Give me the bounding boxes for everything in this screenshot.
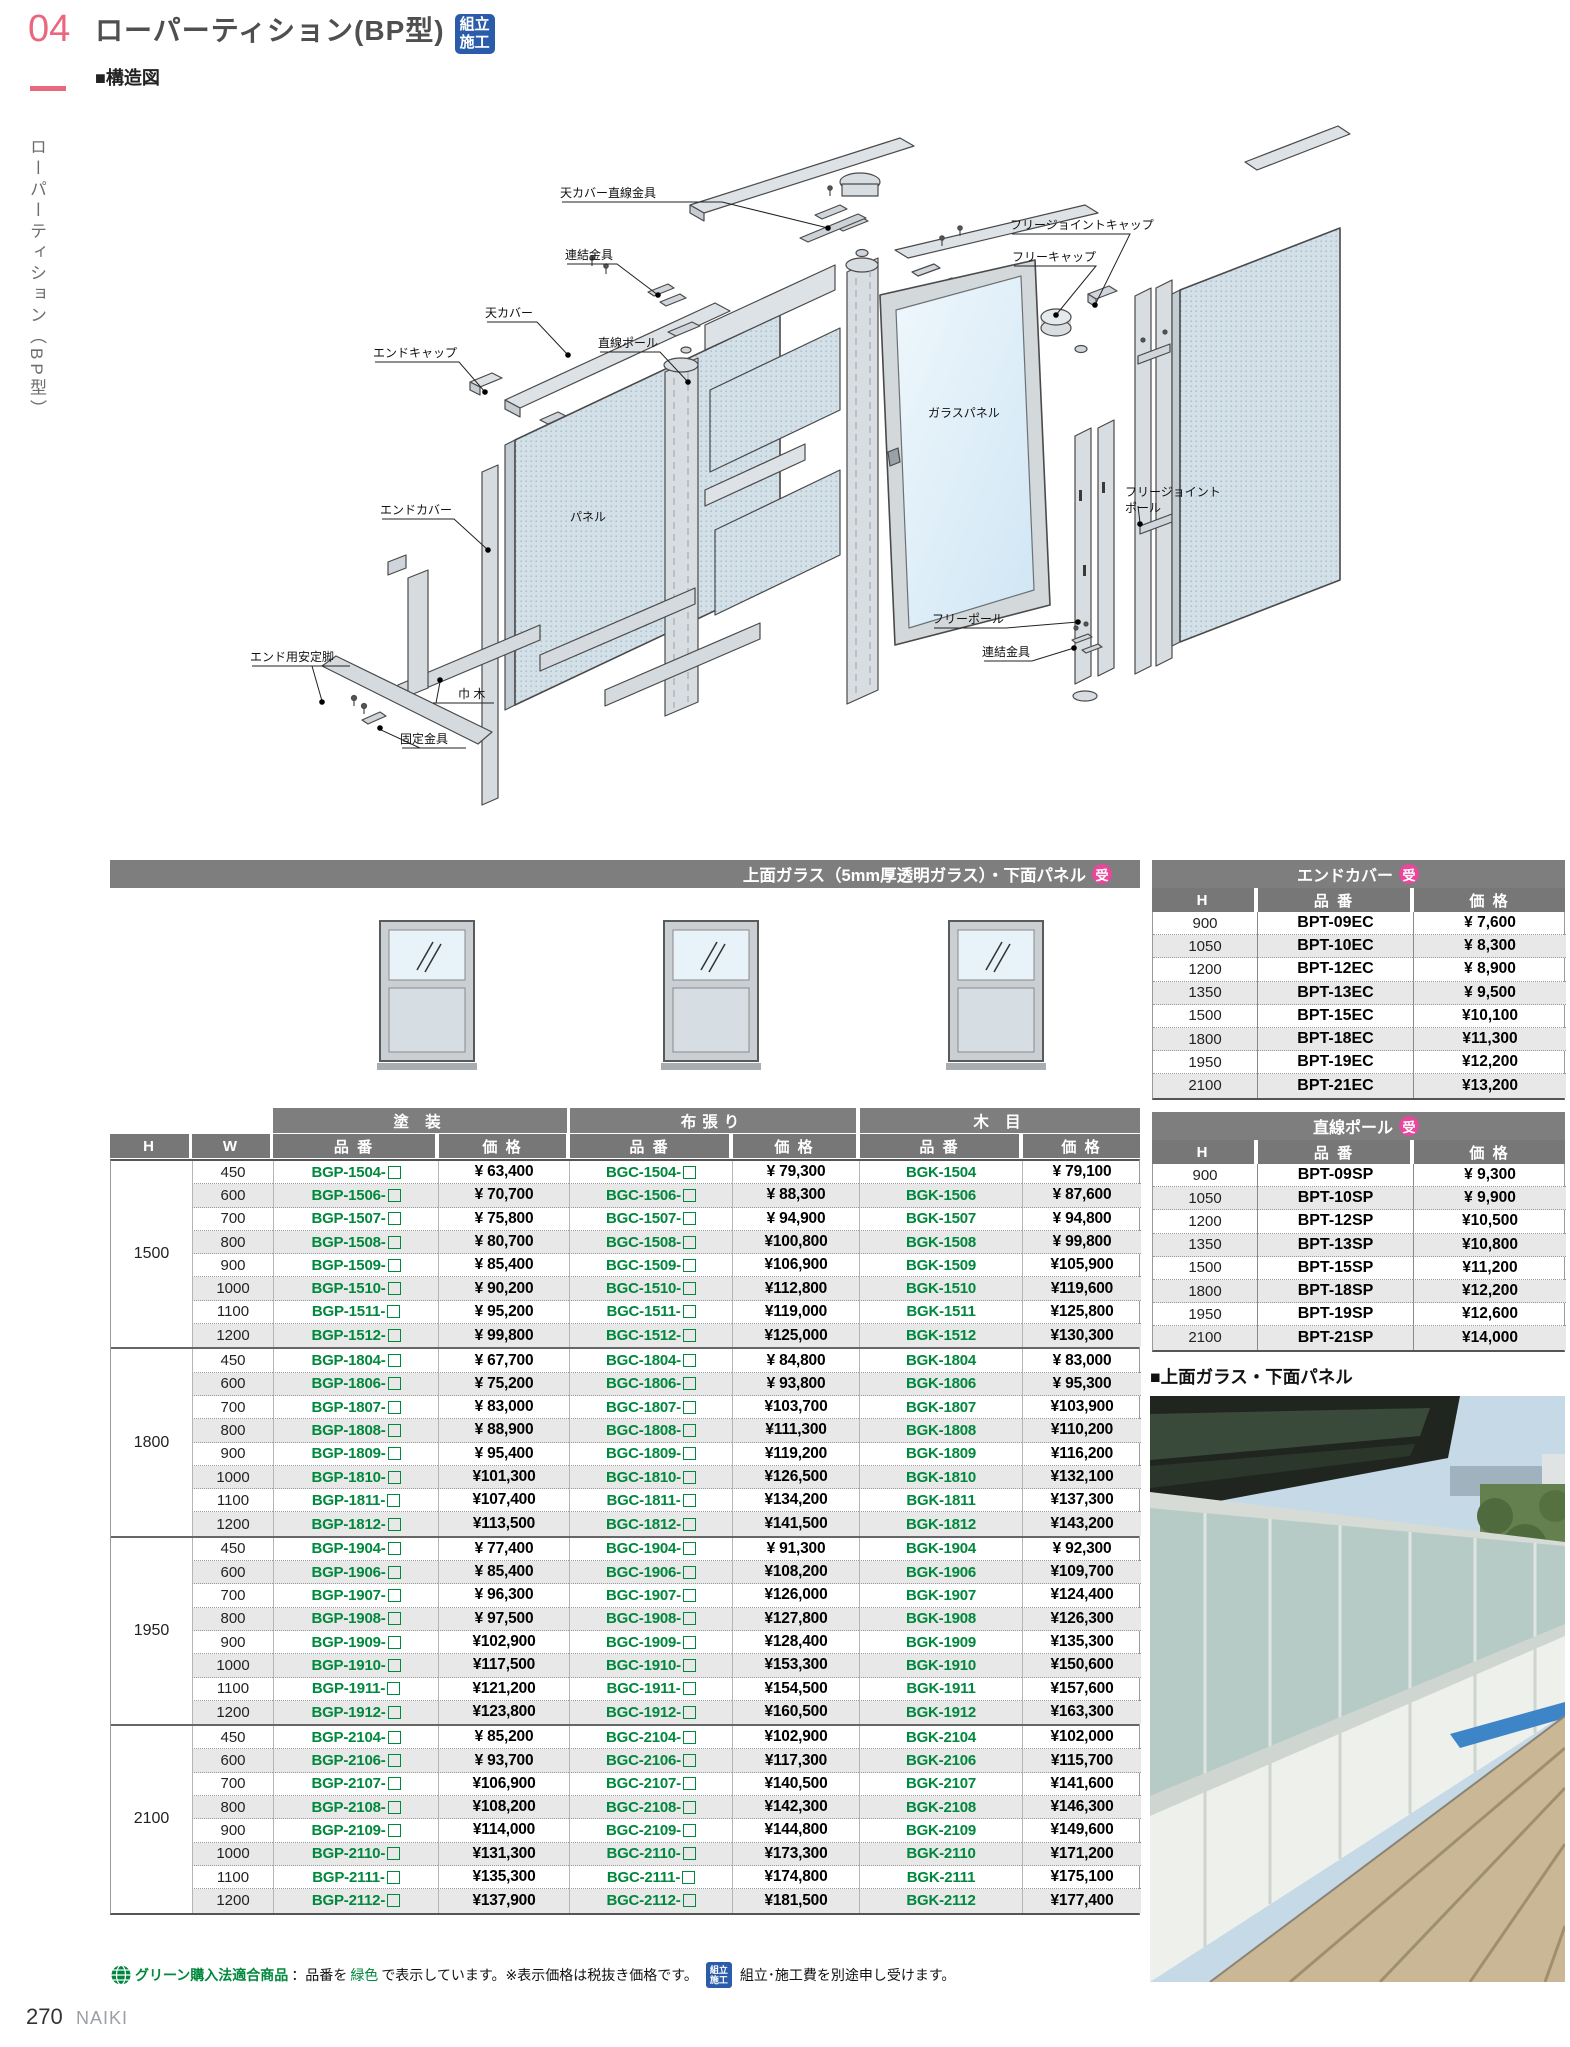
price: ¥10,100 [1413,1005,1566,1028]
product-code-text: BGP-1911- [312,1680,385,1697]
height-value: 1500 [1153,1257,1257,1280]
diagram-label-end-cover: エンドカバー [380,503,452,519]
width-value: 900 [192,1254,273,1277]
product-code-paint: BGP-1808- [273,1419,438,1442]
product-code-text: BGC-1811- [606,1492,680,1509]
product-code-wood: BGK-1504 [859,1161,1022,1184]
price-cloth: ¥181,500 [732,1889,859,1912]
color-variant-box [683,1894,696,1907]
product-code-text: BGP-1912- [311,1704,385,1721]
color-variant-box [683,1494,696,1507]
product-code-cloth: BGC-2109- [569,1819,732,1842]
height-value: 1800 [1153,1280,1257,1303]
product-code-paint: BGP-1804- [273,1349,438,1372]
width-value: 450 [192,1161,273,1184]
price-wood: ¥110,200 [1022,1419,1141,1442]
size-section-1950: 1950450BGP-1904-¥ 77,400BGC-1904-¥ 91,30… [111,1536,1139,1724]
color-variant-box [388,1589,401,1602]
green-purchase-label: グリーン購入法適合商品 [135,1965,288,1985]
assembly-badge-line1: 組立 [460,16,490,34]
col-header-price: 価 格 [733,1134,856,1158]
product-code: BPT-13EC [1257,982,1413,1005]
product-code-text: BGC-1907- [606,1587,681,1604]
product-code-text: BGK-1810 [906,1469,976,1486]
product-code-wood: BGK-1910 [859,1654,1022,1677]
product-code-text: BGP-1909- [311,1634,385,1651]
product-code-text: BGK-1804 [906,1352,976,1369]
product-code-wood: BGK-1510 [859,1277,1022,1300]
product-code-text: BGK-2109 [906,1822,976,1839]
price-cloth: ¥108,200 [732,1561,859,1584]
product-code-paint: BGP-1511- [273,1301,438,1324]
product-code-text: BGP-1904- [311,1540,385,1557]
price: ¥ 7,600 [1413,912,1566,935]
price: ¥11,200 [1413,1257,1566,1280]
height-group-value: 1800 [111,1349,192,1535]
assembly-fee-note: 組立･施工費を別途申し受けます。 [740,1965,956,1985]
page-title: ローパーティション(BP型) [95,14,445,48]
height-value: 1350 [1153,982,1257,1005]
price-cloth: ¥127,800 [732,1608,859,1631]
product-code-text: BGP-1512- [311,1327,385,1344]
page-section-number: 04 [28,8,70,51]
price-wood: ¥ 92,300 [1022,1538,1141,1561]
product-code-text: BGP-2106- [311,1752,385,1769]
order-production-badge: 受 [1092,864,1112,884]
title-row: ローパーティション(BP型) 組立 施工 [95,14,495,54]
product-code-paint: BGP-2106- [273,1749,438,1772]
product-code-text: BGP-2104- [311,1729,385,1746]
price-paint: ¥ 85,400 [438,1561,569,1584]
straight-pole-rows: 900BPT-09SP¥ 9,3001050BPT-10SP¥ 9,900120… [1152,1164,1565,1352]
product-code-paint: BGP-2107- [273,1773,438,1796]
color-variant-box [682,1871,695,1884]
col-header-price: 価 格 [1023,1134,1140,1158]
height-value: 1350 [1153,1234,1257,1257]
product-code-text: BGC-1511- [606,1303,680,1320]
color-variant-box [388,1731,401,1744]
width-value: 1100 [192,1866,273,1889]
product-code: BPT-12EC [1257,958,1413,981]
price-paint: ¥ 85,200 [438,1726,569,1749]
product-code-cloth: BGC-1912- [569,1701,732,1724]
product-code-paint: BGP-1809- [273,1443,438,1466]
product-code-wood: BGK-1909 [859,1631,1022,1654]
price-wood: ¥ 95,300 [1022,1373,1141,1396]
color-variant-box [387,1305,400,1318]
price-wood: ¥175,100 [1022,1866,1141,1889]
color-variant-box [683,1777,696,1790]
width-value: 1100 [192,1301,273,1324]
color-variant-box [683,1401,696,1414]
product-code-cloth: BGC-1910- [569,1654,732,1677]
product-code-text: BGC-1812- [606,1516,681,1533]
footer-notes: グリーン購入法適合商品：品番を緑色で表示しています。※表示価格は税抜き価格です。… [110,1962,955,1988]
price-wood: ¥ 87,600 [1022,1184,1141,1207]
diagram-label-skirting: 巾 木 [458,687,485,703]
width-value: 800 [192,1608,273,1631]
product-code-wood: BGK-2110 [859,1843,1022,1866]
price-paint: ¥ 70,700 [438,1184,569,1207]
product-code-text: BGC-1504- [606,1164,681,1181]
product-code-text: BGC-2107- [606,1775,681,1792]
size-section-2100: 2100450BGP-2104-¥ 85,200BGC-2104-¥102,90… [111,1724,1139,1912]
product-code-cloth: BGC-1911- [569,1678,732,1701]
price-cloth: ¥160,500 [732,1701,859,1724]
product-code-wood: BGK-1908 [859,1608,1022,1631]
product-code-paint: BGP-2104- [273,1726,438,1749]
product-code-cloth: BGC-1806- [569,1373,732,1396]
price-paint: ¥131,300 [438,1843,569,1866]
width-value: 1100 [192,1489,273,1512]
price-cloth: ¥117,300 [732,1749,859,1772]
color-variant-box [388,1471,401,1484]
price-wood: ¥119,600 [1022,1277,1141,1300]
price: ¥14,000 [1413,1326,1566,1349]
price-paint: ¥ 80,700 [438,1231,569,1254]
product-code-paint: BGP-1810- [273,1466,438,1489]
product-code-paint: BGP-1504- [273,1161,438,1184]
product-code-wood: BGK-2108 [859,1796,1022,1819]
product-code-text: BGC-1510- [606,1280,681,1297]
end-cover-title: エンドカバー [1297,862,1393,886]
price: ¥10,500 [1413,1210,1566,1233]
price-wood: ¥132,100 [1022,1466,1141,1489]
price-cloth: ¥174,800 [732,1866,859,1889]
color-variant-box [683,1566,696,1579]
product-code-text: BGP-1808- [311,1422,385,1439]
price-cloth: ¥153,300 [732,1654,859,1677]
price-paint: ¥ 95,400 [438,1443,569,1466]
product-code-wood: BGK-2109 [859,1819,1022,1842]
price-paint: ¥114,000 [438,1819,569,1842]
main-price-table: 上面ガラス（5mm厚透明ガラス）・下面パネル 受 [110,860,1140,1915]
price-cloth: ¥119,000 [732,1301,859,1324]
product-code: BPT-09SP [1257,1164,1413,1187]
product-code-cloth: BGC-2110- [569,1843,732,1866]
color-variant-box [388,1377,401,1390]
product-code-wood: BGK-1509 [859,1254,1022,1277]
width-value: 1100 [192,1678,273,1701]
product-code-text: BGP-2109- [311,1822,385,1839]
product-code-text: BGP-1504- [311,1164,385,1181]
price-paint: ¥ 75,200 [438,1373,569,1396]
finish-header-row: 塗 装 布張り 木 目 [110,1108,1140,1134]
price-paint: ¥ 99,800 [438,1324,569,1347]
price-paint: ¥ 95,200 [438,1301,569,1324]
width-value: 800 [192,1419,273,1442]
diagram-label-end-cap: エンドキャップ [373,346,457,362]
price-paint: ¥113,500 [438,1512,569,1535]
product-code-text: BGK-1909 [906,1634,976,1651]
product-code-paint: BGP-2109- [273,1819,438,1842]
color-variant-box [388,1518,401,1531]
price-wood: ¥126,300 [1022,1608,1141,1631]
height-value: 1200 [1153,1210,1257,1233]
partition-thumbnail [377,918,477,1070]
diagram-label-glass-panel: ガラスパネル [928,406,1000,422]
product-code-paint: BGP-1910- [273,1654,438,1677]
price-paint: ¥ 63,400 [438,1161,569,1184]
product-code-text: BGC-2111- [607,1869,680,1886]
product-code-text: BGP-1812- [311,1516,385,1533]
color-variant-box [388,1282,401,1295]
product-code-wood: BGK-2106 [859,1749,1022,1772]
price-cloth: ¥154,500 [732,1678,859,1701]
diagram-label-top-cover-joint: 天カバー直線金具 [560,186,656,202]
pink-dash [30,86,66,91]
product-code-text: BGK-1907 [906,1587,976,1604]
product-code-text: BGC-1807- [606,1399,681,1416]
height-value: 1950 [1153,1303,1257,1326]
price-paint: ¥ 93,700 [438,1749,569,1772]
price: ¥ 9,300 [1413,1164,1566,1187]
color-variant-box [683,1542,696,1555]
price-cloth: ¥142,300 [732,1796,859,1819]
height-value: 1800 [1153,1028,1257,1051]
product-code-text: BGP-1906- [311,1564,385,1581]
product-code-cloth: BGC-1909- [569,1631,732,1654]
product-code-text: BGK-1904 [906,1540,976,1557]
color-variant-box [387,1682,400,1695]
product-code-cloth: BGC-1804- [569,1349,732,1372]
product-code-text: BGK-1504 [906,1164,976,1181]
assembly-construction-badge: 組立 施工 [455,14,495,54]
straight-pole-title: 直線ポール [1313,1114,1393,1138]
size-section-1800: 1800450BGP-1804-¥ 67,700BGC-1804-¥ 84,80… [111,1347,1139,1535]
color-variant-box [388,1401,401,1414]
width-value: 600 [192,1561,273,1584]
color-variant-box [683,1329,696,1342]
product-code-cloth: BGC-1809- [569,1443,732,1466]
price-paint: ¥135,300 [438,1866,569,1889]
price: ¥ 8,300 [1413,935,1566,958]
price-wood: ¥141,600 [1022,1773,1141,1796]
product-code-wood: BGK-2112 [859,1889,1022,1912]
product-code-wood: BGK-1804 [859,1349,1022,1372]
product-code: BPT-12SP [1257,1210,1413,1233]
height-group-value: 2100 [111,1726,192,1912]
finish-header-cloth: 布張り [570,1108,856,1133]
price-wood: ¥ 99,800 [1022,1231,1141,1254]
width-value: 700 [192,1396,273,1419]
mini-badge-line2: 施工 [710,1975,728,1985]
price-cloth: ¥112,800 [732,1277,859,1300]
price-cloth: ¥103,700 [732,1396,859,1419]
diagram-label-connector-top: 連結金具 [565,248,613,264]
color-variant-box [683,1636,696,1649]
col-header-price: 価 格 [1414,1140,1565,1164]
price-paint: ¥117,500 [438,1654,569,1677]
price-wood: ¥150,600 [1022,1654,1141,1677]
col-header-code: 品 番 [860,1134,1019,1158]
width-value: 1200 [192,1701,273,1724]
product-code-cloth: BGC-1906- [569,1561,732,1584]
color-variant-box [387,1847,400,1860]
price-cloth: ¥134,200 [732,1489,859,1512]
price-cloth: ¥102,900 [732,1726,859,1749]
product-code-text: BGC-1909- [606,1634,681,1651]
price-cloth: ¥ 91,300 [732,1538,859,1561]
color-variant-box [388,1566,401,1579]
product-code-cloth: BGC-1807- [569,1396,732,1419]
color-variant-box [388,1659,401,1672]
product-code: BPT-18SP [1257,1280,1413,1303]
product-code-cloth: BGC-1511- [569,1301,732,1324]
color-variant-box [683,1354,696,1367]
product-code-text: BGK-1811 [906,1492,975,1509]
product-code-text: BGP-2111- [312,1869,384,1886]
color-variant-box [683,1236,696,1249]
product-code: BPT-19SP [1257,1303,1413,1326]
price-wood: ¥ 83,000 [1022,1349,1141,1372]
product-code-paint: BGP-1506- [273,1184,438,1207]
height-value: 1050 [1153,935,1257,958]
assembly-construction-mini-badge: 組立 施工 [706,1962,732,1988]
mini-badge-line1: 組立 [710,1965,728,1975]
product-code-text: BGP-1509- [311,1257,385,1274]
product-code-paint: BGP-1509- [273,1254,438,1277]
price-cloth: ¥128,400 [732,1631,859,1654]
width-value: 900 [192,1819,273,1842]
photo-heading: ■上面ガラス・下面パネル [1150,1364,1353,1389]
color-variant-box [683,1189,696,1202]
product-code: BPT-09EC [1257,912,1413,935]
diagram-label-free-joint-cap: フリージョイントキャップ [1010,218,1154,234]
product-code-text: BGK-1812 [906,1516,976,1533]
price-wood: ¥125,800 [1022,1301,1141,1324]
price-wood: ¥130,300 [1022,1324,1141,1347]
color-variant-box [683,1847,696,1860]
price: ¥12,600 [1413,1303,1566,1326]
color-variant-box [683,1305,696,1318]
color-variant-box [683,1212,696,1225]
col-header-h: H [110,1134,189,1158]
product-code-wood: BGK-1812 [859,1512,1022,1535]
price-paint: ¥ 75,800 [438,1208,569,1231]
diagram-label-fixing-bracket: 固定金具 [400,732,448,748]
product-code-wood: BGK-1904 [859,1538,1022,1561]
price-wood: ¥ 94,800 [1022,1208,1141,1231]
product-code-paint: BGP-1909- [273,1631,438,1654]
color-variant-box [388,1329,401,1342]
end-cover-header-row: H 品 番 価 格 [1152,888,1565,912]
color-variant-box [683,1377,696,1390]
product-code-wood: BGK-1810 [859,1466,1022,1489]
col-header-code: 品 番 [1258,1140,1410,1164]
partition-thumbnails [110,888,1140,1108]
width-value: 1000 [192,1466,273,1489]
width-value: 450 [192,1538,273,1561]
price-cloth: ¥ 93,800 [732,1373,859,1396]
color-variant-box [388,1754,401,1767]
price-wood: ¥109,700 [1022,1561,1141,1584]
price-cloth: ¥ 94,900 [732,1208,859,1231]
color-variant-box [387,1894,400,1907]
product-code-paint: BGP-1907- [273,1584,438,1607]
product-code-paint: BGP-1510- [273,1277,438,1300]
product-code-text: BGP-2108- [311,1799,385,1816]
height-value: 1950 [1153,1051,1257,1074]
order-production-badge: 受 [1399,864,1419,884]
product-code-text: BGC-1908- [606,1610,681,1627]
product-code: BPT-10EC [1257,935,1413,958]
price-cloth: ¥ 79,300 [732,1161,859,1184]
product-code-text: BGC-1809- [606,1445,681,1462]
color-variant-box [388,1612,401,1625]
col-header-w: W [192,1134,270,1158]
product-code-wood: BGK-2104 [859,1726,1022,1749]
note-text: で表示しています。※表示価格は税抜き価格です。 [381,1965,698,1985]
product-code-paint: BGP-1911- [273,1678,438,1701]
price: ¥13,200 [1413,1074,1566,1097]
color-variant-box [388,1236,401,1249]
product-code-text: BGK-2104 [906,1729,976,1746]
application-photo-art [1150,1396,1565,1982]
width-value: 1200 [192,1324,273,1347]
height-value: 1200 [1153,958,1257,981]
height-value: 900 [1153,1164,1257,1187]
price-cloth: ¥106,900 [732,1254,859,1277]
product-code-text: BGK-1510 [906,1280,976,1297]
color-variant-box [683,1612,696,1625]
width-value: 700 [192,1773,273,1796]
product-code-wood: BGK-2111 [859,1866,1022,1889]
product-code-text: BGK-2106 [906,1752,976,1769]
product-code-paint: BGP-1512- [273,1324,438,1347]
product-code-text: BGK-1912 [906,1704,976,1721]
straight-pole-table: 直線ポール 受 H 品 番 価 格 900BPT-09SP¥ 9,3001050… [1152,1112,1565,1352]
color-variant-box [388,1542,401,1555]
height-value: 1500 [1153,1005,1257,1028]
product-code-paint: BGP-1811- [273,1489,438,1512]
product-code-text: BGK-1511 [906,1303,975,1320]
product-code-cloth: BGC-1506- [569,1184,732,1207]
price-paint: ¥ 90,200 [438,1277,569,1300]
product-code-text: BGP-2110- [312,1845,385,1862]
product-code-text: BGC-1904- [606,1540,681,1557]
product-code-text: BGK-1910 [906,1657,976,1674]
green-purchase-globe-icon [110,1964,132,1986]
product-code-text: BGP-1810- [311,1469,385,1486]
color-variant-box [388,1212,401,1225]
col-header-h: H [1152,888,1254,912]
price: ¥12,200 [1413,1280,1566,1303]
price-cloth: ¥ 88,300 [732,1184,859,1207]
price-cloth: ¥140,500 [732,1773,859,1796]
product-code-text: BGP-1910- [311,1657,385,1674]
end-cover-table: エンドカバー 受 H 品 番 価 格 900BPT-09EC¥ 7,600105… [1152,860,1565,1100]
product-code-text: BGK-1507 [906,1210,976,1227]
finish-header-paint: 塗 装 [273,1108,567,1133]
width-value: 1000 [192,1843,273,1866]
product-code-text: BGC-1804- [606,1352,681,1369]
color-variant-box [388,1424,401,1437]
color-variant-box [683,1259,696,1272]
price: ¥10,800 [1413,1234,1566,1257]
diagram-label-end-stabilizer-foot: エンド用安定脚 [250,650,334,666]
width-value: 1000 [192,1277,273,1300]
product-code-text: BGK-1512 [906,1327,976,1344]
col-header-price: 価 格 [1414,888,1565,912]
price-paint: ¥ 88,900 [438,1419,569,1442]
product-code: BPT-21EC [1257,1074,1413,1097]
side-vertical-label: ローパーティション（BP型） [24,138,49,421]
product-code-text: BGC-1910- [606,1657,681,1674]
price: ¥ 8,900 [1413,958,1566,981]
price-wood: ¥157,600 [1022,1678,1141,1701]
product-code-text: BGK-2111 [907,1869,975,1886]
